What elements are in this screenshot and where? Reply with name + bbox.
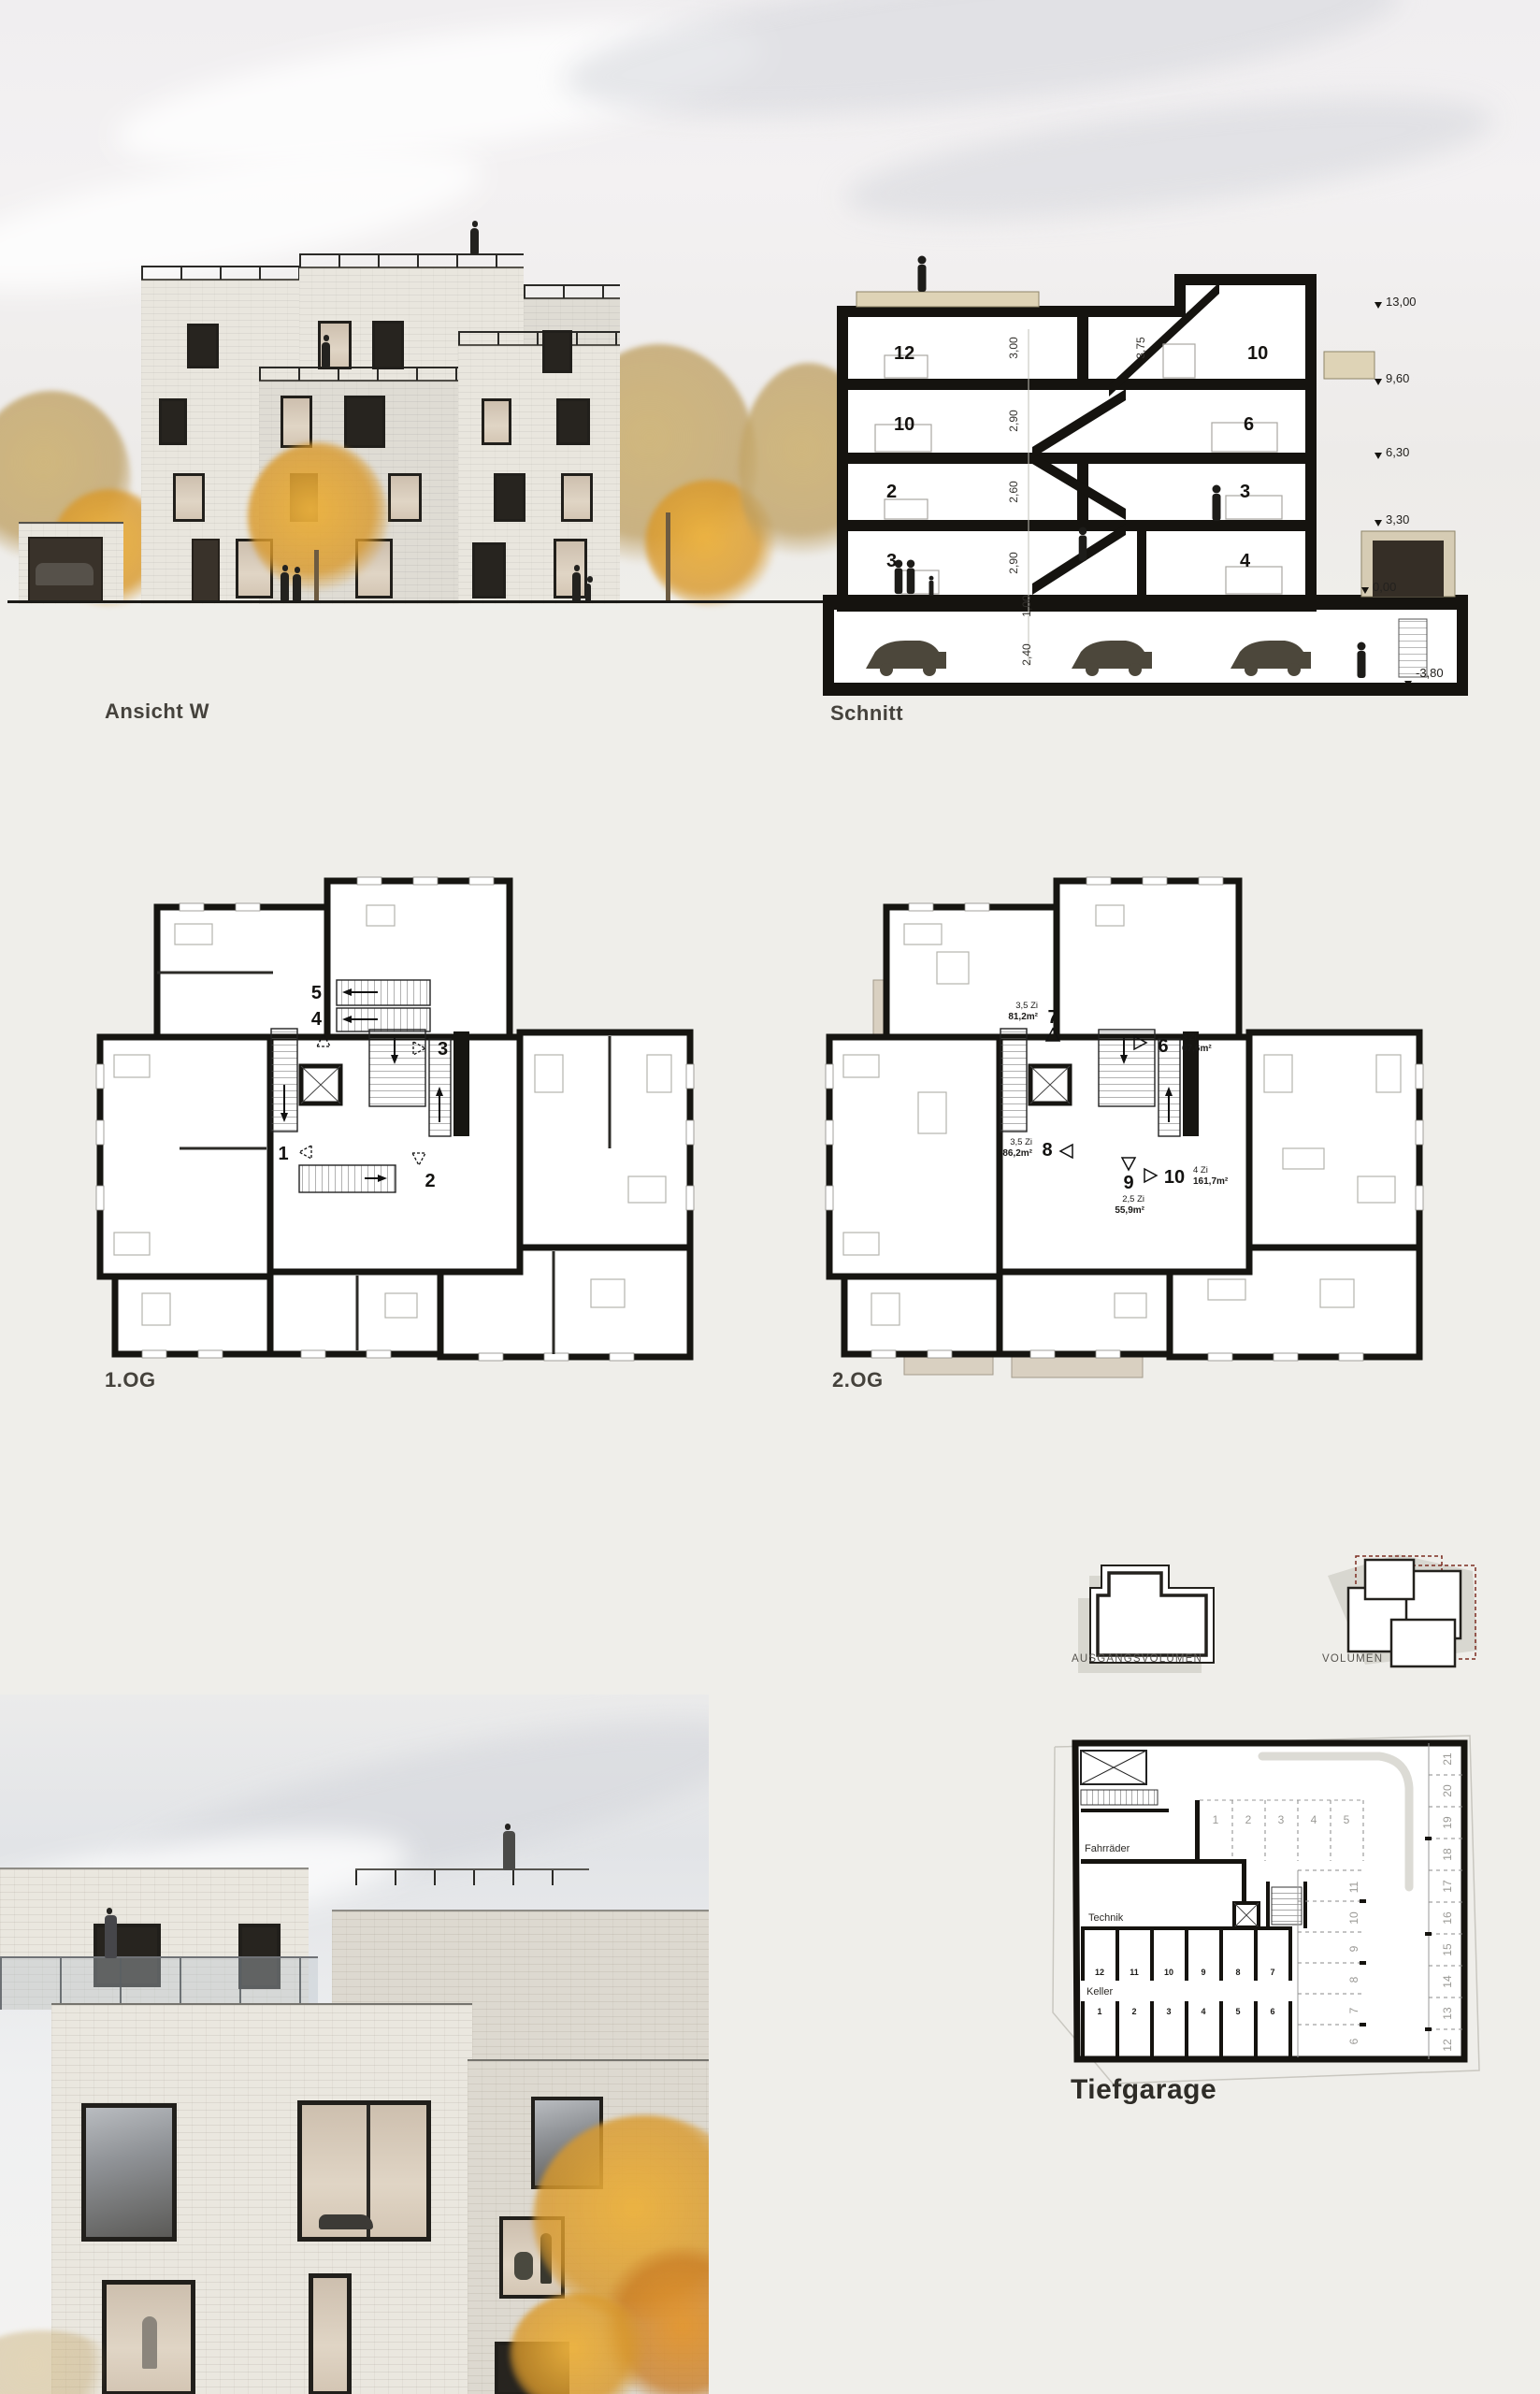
floor-plan-2og: 3,5 Zi 81,2m² 7 6 3 Zi 67,6m² 3,5 Zi 86,…: [815, 868, 1465, 1392]
svg-text:1: 1: [1097, 2007, 1101, 2016]
window: [542, 330, 572, 373]
svg-text:14: 14: [1441, 1975, 1454, 1988]
window: [173, 473, 205, 522]
window: [472, 542, 506, 598]
garage-plan: 1 2 3 4 5 Fahrräder Technik: [1047, 1730, 1533, 2104]
svg-text:55,9m²: 55,9m²: [1115, 1205, 1144, 1216]
perspective-rendering: [0, 1695, 709, 2394]
svg-text:6,30: 6,30: [1386, 445, 1409, 459]
svg-text:1: 1: [278, 1144, 288, 1164]
person-silhouette: [322, 342, 330, 368]
person-silhouette: [503, 1831, 515, 1870]
svg-text:10: 10: [1247, 343, 1268, 364]
svg-text:16: 16: [1441, 1911, 1454, 1925]
svg-text:4: 4: [1311, 1813, 1317, 1826]
person-silhouette: [293, 574, 301, 601]
svg-text:1: 1: [1213, 1813, 1219, 1826]
svg-text:10: 10: [1164, 1968, 1173, 1977]
svg-text:12: 12: [894, 343, 914, 364]
svg-text:1,00: 1,00: [1020, 595, 1033, 617]
svg-text:6: 6: [1158, 1036, 1168, 1057]
roof-terrace: [856, 292, 1039, 307]
wall: [1242, 1859, 1246, 1901]
window: [187, 324, 219, 368]
section-schnitt: 12 10 10 6 2 3 3 4 3,00 3,75 2,90 2,60 2…: [800, 254, 1535, 731]
right-court: [1317, 531, 1468, 607]
ground-line: [7, 600, 849, 603]
svg-text:3,75: 3,75: [1134, 337, 1147, 359]
svg-text:10: 10: [894, 414, 914, 435]
wall: [1081, 1809, 1169, 1812]
svg-text:5: 5: [1344, 1813, 1350, 1826]
window: [372, 321, 404, 369]
svg-text:5: 5: [311, 983, 322, 1003]
volume-label-initial: AUSGANGSVOLUMEN: [1072, 1653, 1202, 1665]
svg-text:-3,80: -3,80: [1416, 666, 1444, 680]
svg-text:3,00: 3,00: [1007, 337, 1020, 359]
balcony-railing: [458, 331, 620, 345]
balcony-railing: [259, 367, 458, 381]
window: [482, 398, 511, 445]
svg-text:3,5 Zi: 3,5 Zi: [1015, 1001, 1038, 1011]
svg-text:2: 2: [1131, 2007, 1136, 2016]
svg-text:3: 3: [1278, 1813, 1285, 1826]
window: [556, 398, 590, 445]
drawing-label-tiefgarage: Tiefgarage: [1071, 2074, 1216, 2106]
window: [388, 473, 422, 522]
svg-text:3: 3: [1166, 2007, 1171, 2016]
room-label-keller: Keller: [1087, 1986, 1113, 1997]
window: [281, 396, 312, 448]
svg-text:12: 12: [1441, 2039, 1454, 2052]
glass-balustrade: [0, 1956, 318, 2010]
svg-text:2: 2: [1245, 1813, 1252, 1826]
garage-entry-stair: [1081, 1790, 1158, 1805]
svg-text:8: 8: [1235, 1968, 1240, 1977]
roof-railing: [141, 266, 299, 280]
car-silhouette: [36, 563, 94, 585]
svg-text:13,00: 13,00: [1386, 295, 1417, 309]
drawing-label-ansicht: Ansicht W: [105, 699, 209, 724]
svg-text:161,7m²: 161,7m²: [1193, 1176, 1229, 1187]
volume-label-final: VOLUMEN: [1322, 1653, 1383, 1665]
window: [159, 398, 187, 445]
svg-text:12: 12: [1095, 1968, 1104, 1977]
svg-text:2: 2: [886, 482, 897, 502]
svg-text:10: 10: [1164, 1167, 1185, 1188]
person-silhouette: [105, 1915, 117, 1958]
svg-text:8: 8: [1042, 1140, 1052, 1161]
window: [81, 2103, 177, 2242]
svg-text:3: 3: [438, 1039, 448, 1060]
svg-text:20: 20: [1441, 1784, 1454, 1797]
svg-text:86,2m²: 86,2m²: [1002, 1148, 1032, 1159]
svg-text:6: 6: [1270, 2007, 1274, 2016]
svg-text:8: 8: [1347, 1976, 1360, 1983]
svg-text:4: 4: [1240, 551, 1251, 571]
svg-text:3,30: 3,30: [1386, 512, 1409, 526]
reclining-person-silhouette: [319, 2214, 373, 2229]
drawing-label-schnitt: Schnitt: [830, 701, 903, 726]
svg-text:2: 2: [425, 1171, 435, 1191]
room-label-fahrraeder: Fahrräder: [1085, 1843, 1130, 1854]
svg-text:9: 9: [1201, 1968, 1205, 1977]
volume-diagram-final: [1328, 1554, 1477, 1666]
roof-terrace: [1324, 352, 1374, 379]
volume-diagrams: [1057, 1534, 1505, 1693]
drawing-label-og1: 1.OG: [105, 1368, 156, 1392]
svg-text:10: 10: [1347, 1911, 1360, 1925]
svg-text:4 Zi: 4 Zi: [1193, 1165, 1208, 1175]
svg-text:4: 4: [1201, 2007, 1205, 2016]
svg-text:5: 5: [1235, 2007, 1240, 2016]
svg-text:67,6m²: 67,6m²: [1182, 1044, 1212, 1054]
svg-text:7: 7: [1047, 1007, 1058, 1028]
svg-text:15: 15: [1441, 1943, 1454, 1956]
svg-text:2,40: 2,40: [1020, 643, 1033, 666]
svg-text:9,60: 9,60: [1386, 371, 1409, 385]
window-slider: [297, 2100, 431, 2242]
roof-railing: [299, 253, 524, 267]
svg-text:9: 9: [1347, 1945, 1360, 1952]
svg-text:2,5 Zi: 2,5 Zi: [1122, 1194, 1144, 1204]
svg-text:0,00: 0,00: [1373, 580, 1396, 594]
svg-text:6: 6: [1347, 2038, 1360, 2044]
elevation-ansicht-w: [0, 241, 870, 615]
svg-text:2,90: 2,90: [1007, 410, 1020, 432]
presentation-board: Ansicht W: [0, 0, 1540, 2394]
svg-text:18: 18: [1441, 1848, 1454, 1861]
room-label-technik: Technik: [1088, 1912, 1124, 1924]
wall: [1081, 1859, 1245, 1864]
svg-text:2,90: 2,90: [1007, 552, 1020, 574]
tree-trunk: [314, 550, 319, 602]
seated-person-silhouette: [514, 2252, 533, 2280]
ramp-hatch: [1081, 1751, 1146, 1784]
roof-railing: [524, 284, 620, 298]
svg-text:2,60: 2,60: [1007, 481, 1020, 503]
plan-walls: [100, 881, 690, 1357]
entrance-door: [192, 539, 220, 602]
svg-text:4: 4: [311, 1009, 323, 1030]
svg-text:11: 11: [1130, 1968, 1139, 1977]
person-silhouette: [470, 228, 479, 254]
window: [309, 2273, 352, 2394]
svg-text:7: 7: [1270, 1968, 1274, 1977]
svg-text:3 Zi: 3 Zi: [1182, 1032, 1197, 1043]
svg-text:6: 6: [1244, 414, 1254, 435]
window: [344, 396, 385, 448]
svg-text:3: 3: [886, 551, 897, 571]
svg-text:17: 17: [1441, 1880, 1454, 1893]
svg-text:13: 13: [1441, 2007, 1454, 2020]
window: [561, 473, 593, 522]
svg-text:21: 21: [1441, 1752, 1454, 1766]
person-silhouette: [572, 572, 581, 601]
roof-railing: [355, 1868, 589, 1885]
tree-trunk: [666, 512, 670, 602]
person-silhouette: [142, 2316, 157, 2369]
floor-plan-1og: 5 4 3 1 2: [86, 868, 717, 1392]
svg-text:3,5 Zi: 3,5 Zi: [1010, 1137, 1032, 1147]
person-silhouette: [281, 572, 289, 601]
svg-text:3: 3: [1240, 482, 1250, 502]
drawing-label-og2: 2.OG: [832, 1368, 884, 1392]
svg-text:11: 11: [1347, 1881, 1360, 1893]
child-silhouette: [585, 584, 591, 601]
svg-text:81,2m²: 81,2m²: [1008, 1012, 1038, 1022]
window: [554, 539, 587, 598]
svg-text:19: 19: [1441, 1816, 1454, 1829]
window: [494, 473, 525, 522]
svg-text:9: 9: [1123, 1173, 1133, 1193]
svg-text:7: 7: [1347, 2007, 1360, 2013]
